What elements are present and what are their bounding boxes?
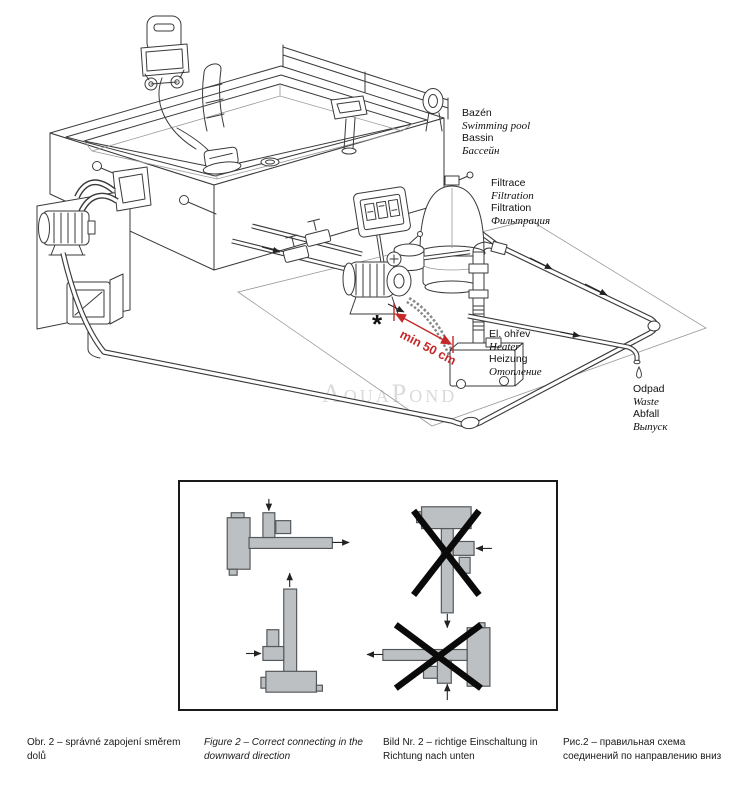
electrical-box [67,274,123,358]
label-pool: Bazén Swimming pool Bassin Бассейн [462,107,530,157]
asterisk-marker: * [372,309,383,339]
main-drain [261,158,279,166]
diagram-correct-horizontal [227,499,349,575]
watermark: AquaPond [322,379,457,408]
drip-icon [637,367,642,378]
diagram-wrong-vertical [414,507,492,628]
caption-ru: Рис.2 – правильная схема соединений по н… [563,736,725,763]
diagram-correct-vertical [246,573,322,692]
caption-en: Figure 2 – Correct connecting in the dow… [204,736,374,763]
manual-page: AquaPond [0,0,750,789]
label-waste: Odpad Waste Abfall Выпуск [633,383,668,433]
label-filtration: Filtrace Filtration Filtration Фильтраци… [491,177,550,227]
filtration-pump [343,252,411,314]
label-heater: El. ohřev Heater Heizung Отопление [489,328,542,378]
caption-de: Bild Nr. 2 – richtige Einschaltung in Ri… [383,736,555,763]
caption-cs: Obr. 2 – správné zapojení směrem dolů [27,736,185,763]
figure-box [178,480,558,711]
diagram-wrong-horizontal [367,623,490,700]
